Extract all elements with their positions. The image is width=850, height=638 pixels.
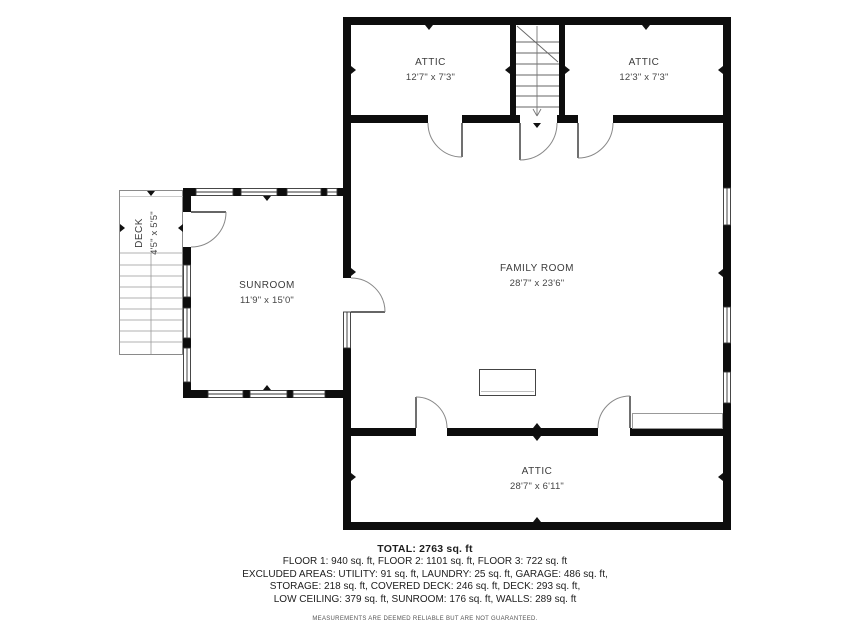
wall-right-4	[723, 403, 731, 530]
door	[578, 123, 613, 158]
wall-right-2	[723, 225, 731, 307]
stair-direction-arrow	[533, 26, 541, 116]
wall-frbottom-c	[630, 428, 731, 436]
wall-right-3	[723, 343, 731, 372]
window	[241, 189, 277, 196]
disclaimer-text: MEASUREMENTS ARE DEEMED RELIABLE BUT ARE…	[0, 613, 850, 626]
deck-stairs	[120, 253, 182, 354]
window	[327, 189, 337, 196]
total-area: TOTAL: 2763 sq. ft	[0, 543, 850, 556]
wall-left-lower	[343, 348, 351, 530]
doors	[191, 123, 630, 428]
window	[250, 391, 287, 398]
window	[208, 391, 243, 398]
windows	[184, 188, 731, 403]
low-wall	[633, 414, 723, 429]
wall-stair-right	[559, 25, 565, 115]
door	[191, 212, 226, 247]
dimension-ticks	[120, 25, 723, 522]
window	[287, 189, 321, 196]
wall-frbottom-a	[343, 428, 416, 436]
floor-areas-line: FLOOR 1: 940 sq. ft, FLOOR 2: 1101 sq. f…	[0, 556, 850, 569]
door	[598, 396, 630, 428]
walls	[183, 17, 731, 530]
wall-stair-left	[510, 25, 516, 115]
fixtures	[480, 370, 723, 429]
wall-divider-d	[613, 115, 731, 123]
stair-break-line	[517, 26, 558, 62]
window	[196, 189, 233, 196]
excluded-areas-line-3: LOW CEILING: 379 sq. ft, SUNROOM: 176 sq…	[0, 594, 850, 607]
deck	[120, 191, 184, 355]
area-summary: TOTAL: 2763 sq. ft FLOOR 1: 940 sq. ft, …	[0, 543, 850, 626]
window	[184, 348, 191, 382]
wall-top	[343, 17, 731, 25]
excluded-areas-line-1: EXCLUDED AREAS: UTILITY: 91 sq. ft, LAUN…	[0, 569, 850, 582]
wall-divider-c	[557, 115, 578, 123]
wall-frbottom-b	[447, 428, 598, 436]
door	[428, 123, 462, 157]
window	[724, 188, 731, 225]
door	[351, 278, 385, 312]
window	[184, 308, 191, 338]
window	[724, 307, 731, 343]
window	[724, 372, 731, 403]
wall-divider-b	[462, 115, 520, 123]
wall-right-1	[723, 17, 731, 188]
staircase	[516, 26, 559, 116]
window	[293, 391, 325, 398]
window	[344, 312, 351, 348]
wall-left-upper	[343, 17, 351, 278]
excluded-areas-line-2: STORAGE: 218 sq. ft, COVERED DECK: 246 s…	[0, 581, 850, 594]
door	[520, 123, 557, 160]
wall-bottom	[343, 522, 731, 530]
fireplace	[480, 370, 536, 396]
wall-divider-a	[343, 115, 428, 123]
window	[184, 265, 191, 297]
door	[416, 397, 447, 428]
floor-plan: ATTIC 12'7" x 7'3" ATTIC 12'3" x 7'3" FA…	[0, 0, 850, 638]
